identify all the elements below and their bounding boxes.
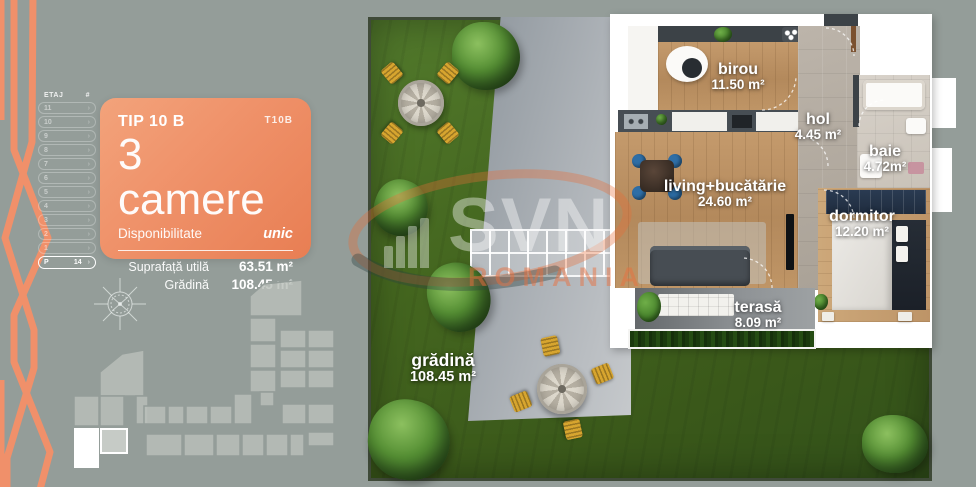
apartment-type-title: TIP 10 B bbox=[118, 113, 185, 131]
chevron-right-icon: › bbox=[88, 203, 90, 210]
room-label-baie: baie 4.72m² bbox=[852, 144, 918, 174]
availability-label: Disponibilitate bbox=[118, 226, 202, 241]
unit-count: 14 bbox=[74, 259, 82, 266]
room-area: 24.60 m² bbox=[650, 195, 800, 209]
garden-chair bbox=[380, 121, 404, 145]
floor-number: 1 bbox=[44, 245, 48, 252]
chevron-right-icon: › bbox=[88, 119, 90, 126]
garden-chair bbox=[509, 390, 533, 413]
room-name: dormitor bbox=[814, 209, 910, 225]
room-name: terasă bbox=[718, 300, 798, 316]
room-label-hol: hol 4.45 m² bbox=[788, 112, 848, 142]
garden-chair bbox=[436, 121, 460, 145]
floor-row-9[interactable]: 9› bbox=[38, 130, 96, 142]
usable-area-value: 63.51 m² bbox=[209, 258, 293, 276]
floor-row-10[interactable]: 10› bbox=[38, 116, 96, 128]
building-site-map[interactable] bbox=[60, 276, 350, 486]
garden-table-set bbox=[376, 58, 466, 150]
garden-chair bbox=[563, 418, 584, 440]
usable-area-label: Suprafață utilă bbox=[128, 259, 209, 276]
room-label-dormitor: dormitor 12.20 m² bbox=[814, 209, 910, 239]
floor-number: 5 bbox=[44, 189, 48, 196]
bush bbox=[862, 415, 928, 473]
card-divider bbox=[118, 250, 293, 251]
floor-number: 3 bbox=[44, 217, 48, 224]
garden-chair bbox=[380, 61, 404, 85]
chevron-right-icon: › bbox=[88, 217, 90, 224]
room-area: 4.45 m² bbox=[788, 128, 848, 142]
selected-unit-highlight bbox=[74, 428, 128, 468]
floorplan-page: { "background_color": "#949d99", "accent… bbox=[0, 0, 976, 487]
floor-row-7[interactable]: 7› bbox=[38, 158, 96, 170]
floor-row-4[interactable]: 4› bbox=[38, 200, 96, 212]
chevron-right-icon: › bbox=[88, 147, 90, 154]
availability-value: unic bbox=[263, 226, 293, 242]
exterior-wall-jut bbox=[930, 148, 952, 212]
count-column-label: # bbox=[86, 92, 90, 99]
floor-row-2[interactable]: 2› bbox=[38, 228, 96, 240]
chevron-right-icon: › bbox=[88, 133, 90, 140]
chevron-right-icon: › bbox=[88, 231, 90, 238]
floor-row-5[interactable]: 5› bbox=[38, 186, 96, 198]
floor-number: 6 bbox=[44, 175, 48, 182]
etaj-label: ETAJ bbox=[44, 92, 63, 99]
rooms-count-headline: 3 camere bbox=[118, 133, 293, 223]
floor-selector-header: ETAJ # bbox=[38, 92, 96, 102]
room-label-living: living+bucătărie 24.60 m² bbox=[650, 179, 800, 209]
terrace-hedge bbox=[628, 329, 816, 349]
chevron-right-icon: › bbox=[88, 245, 90, 252]
garden-label: grădină 108.45 m² bbox=[398, 352, 488, 385]
garden-chair bbox=[590, 362, 614, 385]
room-area: 8.09 m² bbox=[718, 316, 798, 330]
garden-chair bbox=[540, 335, 561, 357]
room-name: baie bbox=[852, 144, 918, 160]
access-walkway bbox=[470, 229, 631, 277]
room-area: 108.45 m² bbox=[398, 370, 488, 385]
chevron-right-icon: › bbox=[88, 259, 90, 266]
floor-row-1[interactable]: 1› bbox=[38, 242, 96, 254]
floor-number: 7 bbox=[44, 161, 48, 168]
floor-row-6[interactable]: 6› bbox=[38, 172, 96, 184]
chevron-right-icon: › bbox=[88, 161, 90, 168]
parasol-table bbox=[398, 80, 444, 126]
floor-number: 4 bbox=[44, 203, 48, 210]
apartment-info-card: TIP 10 B T10B 3 camere Disponibilitate u… bbox=[100, 98, 311, 259]
room-name: living+bucătărie bbox=[650, 179, 800, 195]
garden-chair bbox=[436, 61, 460, 85]
room-area: 4.72m² bbox=[852, 160, 918, 174]
floor-number: P bbox=[44, 259, 49, 266]
floor-number: 11 bbox=[44, 105, 51, 112]
chevron-right-icon: › bbox=[88, 189, 90, 196]
room-label-terasa: terasă 8.09 m² bbox=[718, 300, 798, 330]
room-area: 11.50 m² bbox=[688, 78, 788, 92]
room-name: grădină bbox=[398, 352, 488, 370]
floor-row-8[interactable]: 8› bbox=[38, 144, 96, 156]
exterior-wall-jut bbox=[930, 78, 956, 128]
floor-number: 8 bbox=[44, 147, 48, 154]
floor-row-11[interactable]: 11› bbox=[38, 102, 96, 114]
floor-row-parter-active[interactable]: P 14 › bbox=[38, 256, 96, 269]
floor-number: 10 bbox=[44, 119, 52, 126]
room-area: 12.20 m² bbox=[814, 225, 910, 239]
floor-number: 2 bbox=[44, 231, 48, 238]
parasol-table bbox=[528, 355, 596, 423]
room-name: birou bbox=[688, 62, 788, 78]
room-name: hol bbox=[788, 112, 848, 128]
floor-row-3[interactable]: 3› bbox=[38, 214, 96, 226]
room-label-birou: birou 11.50 m² bbox=[688, 62, 788, 92]
apartment-type-code: T10B bbox=[265, 115, 293, 126]
floor-selector: ETAJ # 11› 10› 9› 8› 7› 6› 5› 4› 3› 2› 1… bbox=[38, 92, 96, 271]
chevron-right-icon: › bbox=[88, 105, 90, 112]
floor-number: 9 bbox=[44, 133, 48, 140]
chevron-right-icon: › bbox=[88, 175, 90, 182]
